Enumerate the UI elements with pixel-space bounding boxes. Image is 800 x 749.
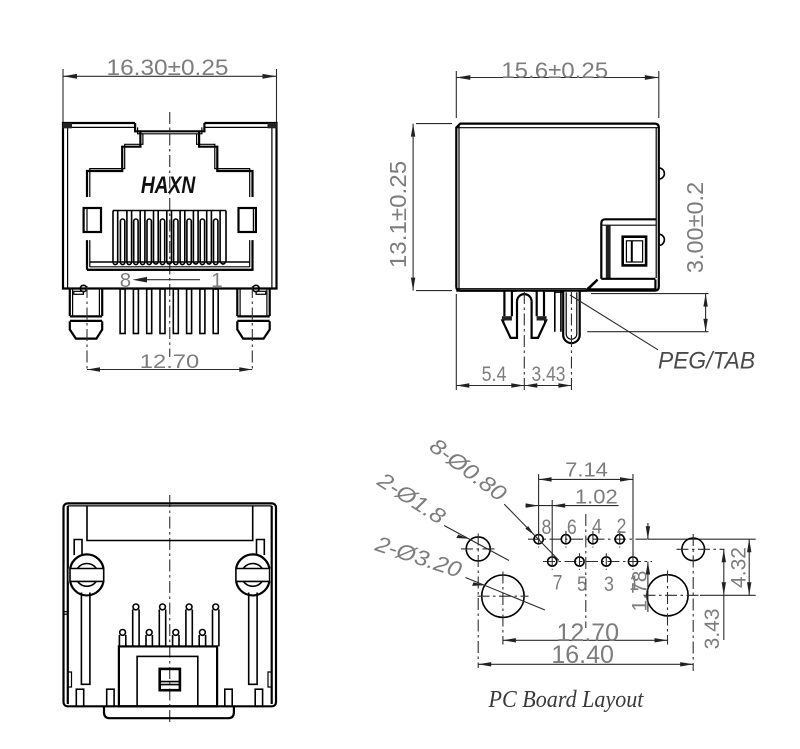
- svg-text:5.4: 5.4: [482, 363, 507, 387]
- svg-text:HAXN: HAXN: [141, 171, 197, 199]
- svg-text:2: 2: [617, 515, 627, 539]
- svg-text:8: 8: [542, 516, 552, 540]
- svg-text:4: 4: [592, 515, 602, 539]
- svg-text:16.40: 16.40: [551, 641, 614, 669]
- svg-text:16.30±0.25: 16.30±0.25: [107, 55, 229, 80]
- svg-text:5: 5: [577, 573, 587, 597]
- svg-text:13.1±0.25: 13.1±0.25: [386, 161, 411, 268]
- svg-text:15.6±0.25: 15.6±0.25: [501, 58, 608, 83]
- svg-text:7: 7: [553, 571, 563, 595]
- svg-text:1.02: 1.02: [575, 486, 618, 508]
- svg-text:3.43: 3.43: [701, 608, 724, 649]
- svg-text:6: 6: [567, 516, 577, 540]
- svg-text:3.43: 3.43: [532, 364, 566, 387]
- svg-text:4.32: 4.32: [728, 547, 751, 588]
- svg-text:PC Board Layout: PC Board Layout: [488, 685, 644, 712]
- svg-text:12.70: 12.70: [140, 351, 199, 372]
- svg-text:PEG/TAB: PEG/TAB: [658, 347, 755, 374]
- svg-text:3: 3: [604, 573, 614, 597]
- svg-text:3.00±0.2: 3.00±0.2: [682, 182, 708, 273]
- svg-text:7.14: 7.14: [565, 459, 608, 481]
- svg-text:1.78: 1.78: [629, 571, 652, 612]
